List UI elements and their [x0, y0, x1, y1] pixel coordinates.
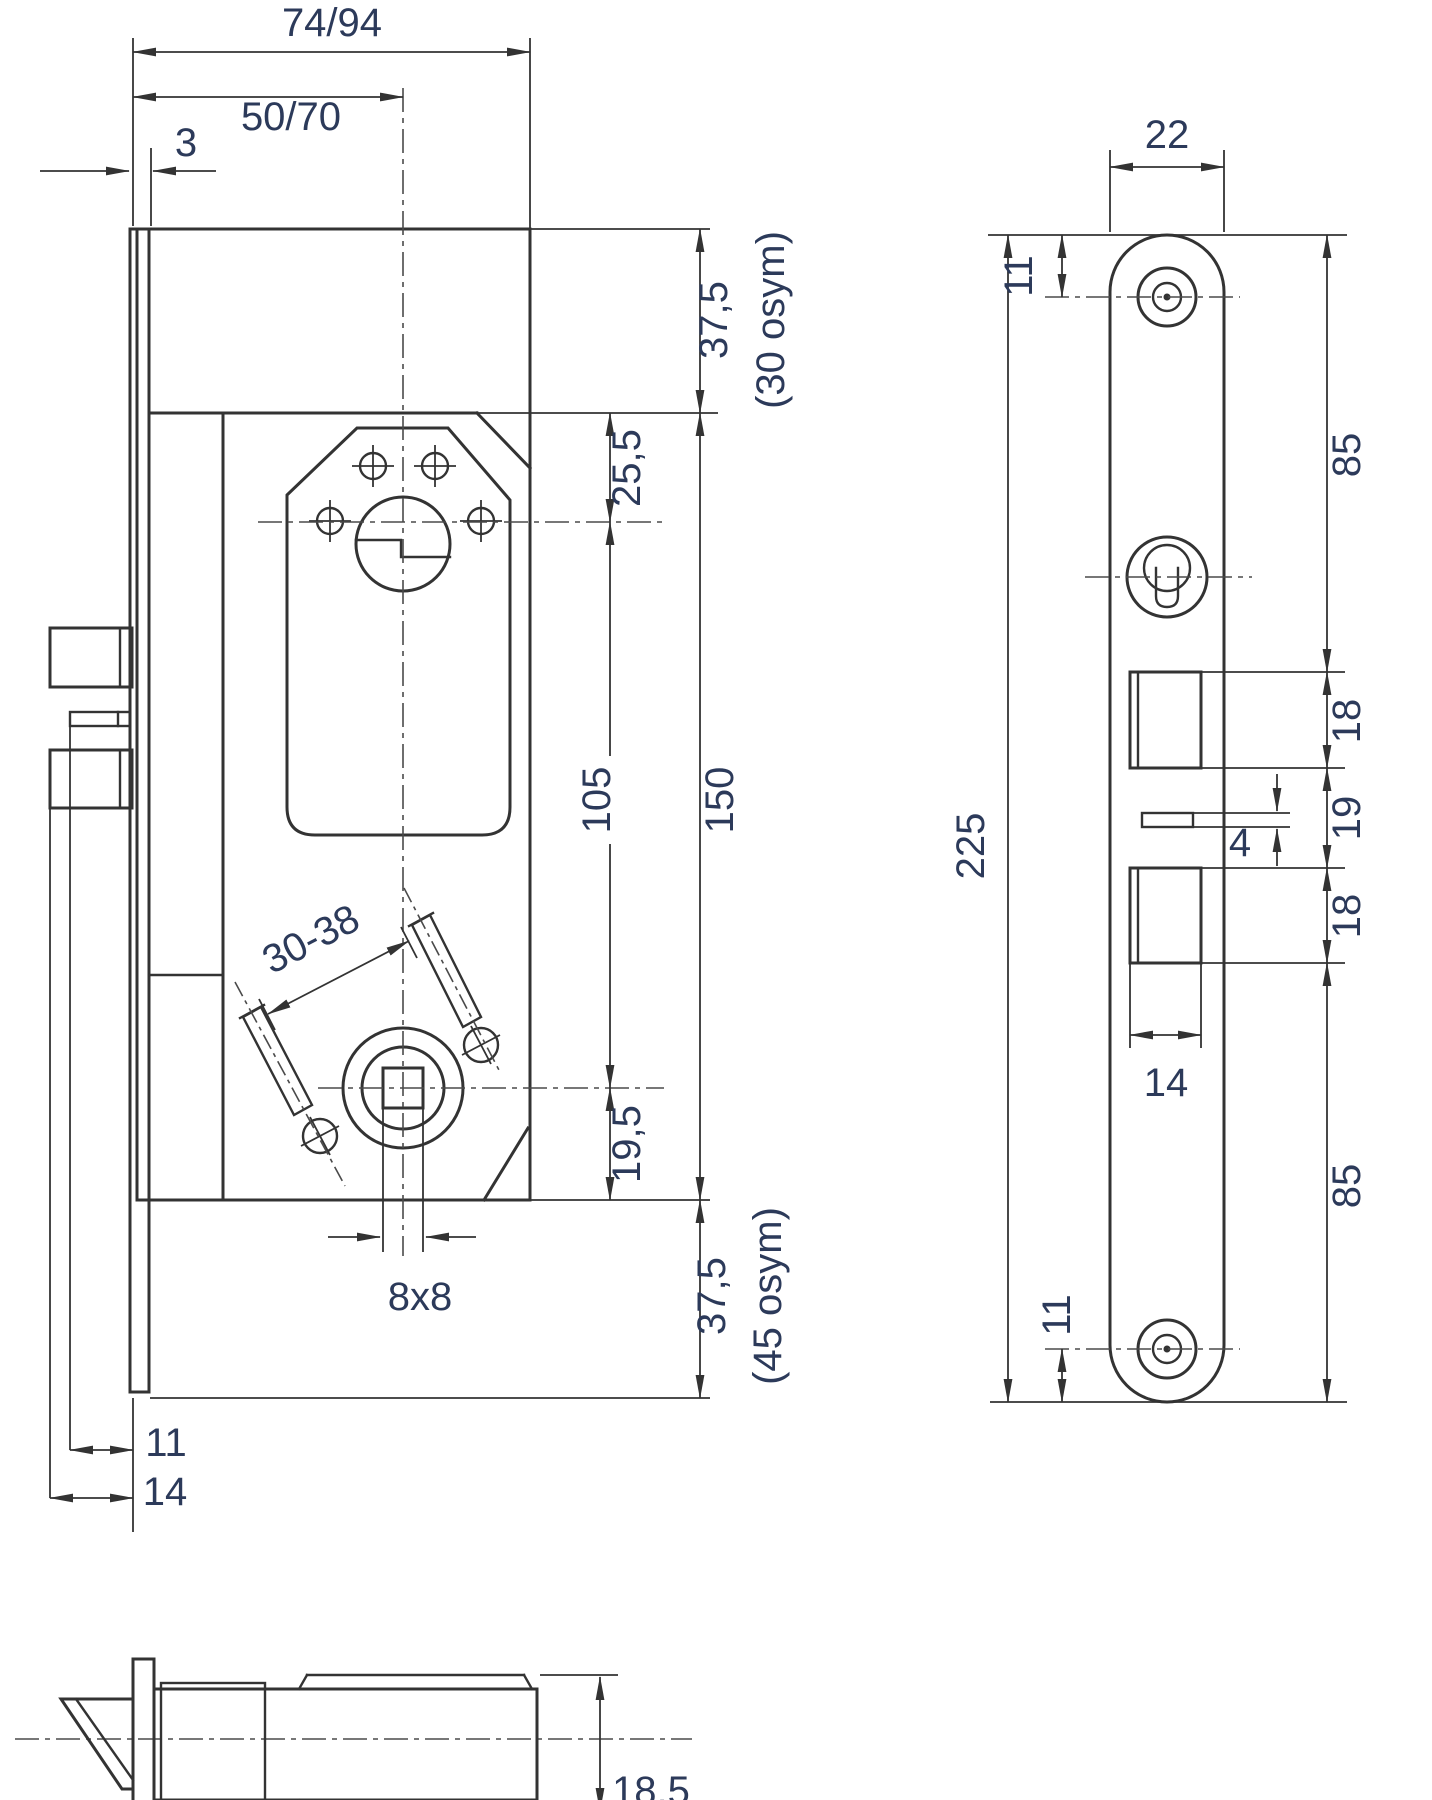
- bolt-cutout-label: 18: [1325, 894, 1369, 939]
- bottom-section-label: 85: [1325, 1164, 1369, 1209]
- faceplate-view: 22 11 85 225 18 19 4 18 14 85 11: [949, 113, 1369, 1402]
- drawing-page: 74/94 50/70 3 37,5 (30 osym) 25,5 105 15…: [0, 0, 1432, 1800]
- lock-case-outline: [130, 229, 530, 1200]
- backset-label: 50/70: [241, 95, 341, 139]
- section-view: 18,5: [15, 1659, 692, 1800]
- cylinder-plate: [287, 428, 510, 835]
- deadbolt-cutout: [1130, 868, 1201, 963]
- follower-offset-label: 19,5: [605, 1105, 649, 1183]
- front-view: 74/94 50/70 3 37,5 (30 osym) 25,5 105 15…: [40, 1, 793, 1532]
- faceplate-offset-label: 3: [175, 121, 197, 165]
- case-height-label: 150: [698, 767, 742, 834]
- faceplate-outline: [1110, 235, 1224, 1402]
- plate-width-label: 22: [1145, 113, 1190, 157]
- bottom-screw-label: 11: [1035, 1294, 1079, 1336]
- hub-distance-label: 105: [575, 767, 619, 834]
- latch-cutout: [1130, 672, 1201, 768]
- total-length-label: 225: [949, 813, 993, 880]
- cylinder-offset-label: 25,5: [605, 429, 649, 507]
- latch-projection-label: 11: [145, 1421, 187, 1465]
- bottom-margin-label: 37,5: [690, 1257, 734, 1335]
- latch-cutout-label: 18: [1325, 699, 1369, 744]
- top-margin-note: (30 osym): [749, 231, 793, 409]
- top-screw-label: 11: [997, 255, 1041, 297]
- bottom-margin-note: (45 osym): [746, 1207, 790, 1385]
- top-section-label: 85: [1325, 433, 1369, 478]
- faceplate-edge: [130, 229, 149, 1392]
- aux-latch-slot: [1142, 813, 1193, 827]
- top-margin-label: 37,5: [692, 281, 736, 359]
- section-case-body: [154, 1675, 537, 1800]
- aux-slot-label: 4: [1229, 821, 1251, 865]
- case-depth-label: 18,5: [612, 1769, 690, 1800]
- section-faceplate: [133, 1659, 154, 1800]
- case-width-label: 74/94: [282, 1, 382, 45]
- cutout-width-label: 14: [1144, 1061, 1189, 1105]
- plate-screw-icon: [460, 500, 502, 542]
- section-latch-head: [61, 1699, 133, 1789]
- spindle-label: 8x8: [388, 1275, 453, 1319]
- plate-screw-icon: [352, 445, 394, 487]
- lock-dimension-drawing: 74/94 50/70 3 37,5 (30 osym) 25,5 105 15…: [0, 0, 1432, 1800]
- fixing-screw-post-lower: [235, 982, 345, 1186]
- latch-bolt: [50, 628, 132, 687]
- screw-spacing-label: 30-38: [255, 896, 366, 982]
- fixing-screw-post-upper: [404, 888, 500, 1072]
- deadbolt: [50, 726, 132, 1498]
- plate-screw-icon: [309, 500, 351, 542]
- plate-screw-icon: [414, 445, 456, 487]
- cutout-gap-label: 19: [1325, 796, 1369, 841]
- auxiliary-pin: [70, 712, 130, 726]
- bolt-projection-label: 14: [143, 1470, 188, 1514]
